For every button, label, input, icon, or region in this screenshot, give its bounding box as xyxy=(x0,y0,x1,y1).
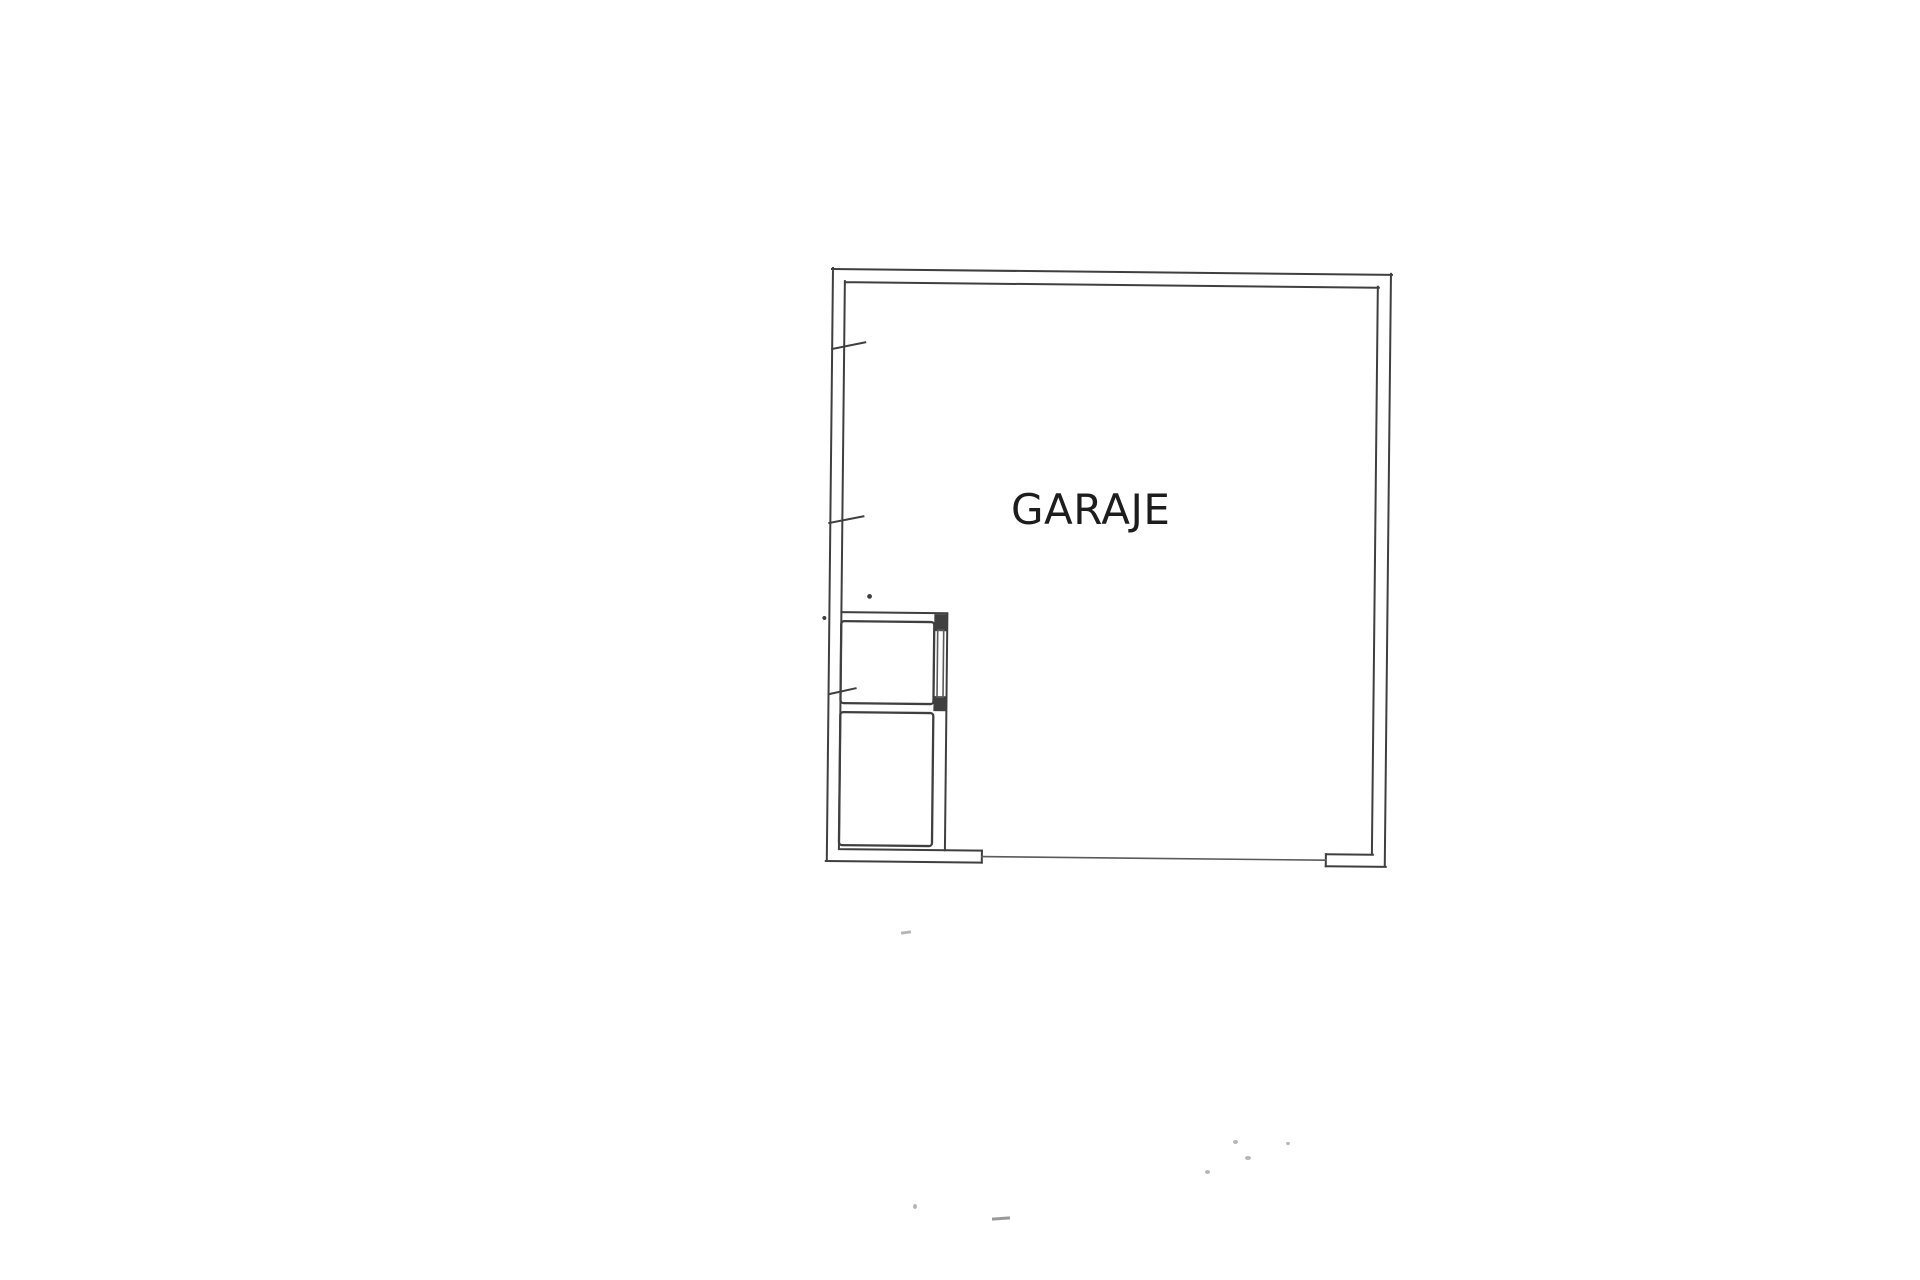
ink-dot-2 xyxy=(822,616,826,620)
storage-room-upper xyxy=(840,621,934,704)
scan-speck xyxy=(913,1204,917,1209)
storage-partition-outer xyxy=(839,612,947,850)
scanned-floor-plan-page: GARAJE xyxy=(0,0,1920,1280)
room-label-garaje: GARAJE xyxy=(1011,489,1170,531)
wall-break-tick-3 xyxy=(830,688,856,694)
garage-door-threshold-line xyxy=(982,857,1326,861)
storage-room-lower xyxy=(839,712,933,846)
wall-break-tick-1 xyxy=(832,342,865,349)
inner-wall-lines xyxy=(839,281,1379,855)
door-jamb-block-bottom xyxy=(933,696,946,711)
door-leaf xyxy=(937,630,944,697)
scan-speck xyxy=(1245,1156,1251,1160)
wall-break-tick-2 xyxy=(829,516,863,523)
scan-speck xyxy=(1205,1170,1210,1174)
scan-speck xyxy=(1233,1140,1238,1144)
outer-wall-lines xyxy=(826,268,1392,867)
garage-plan xyxy=(820,268,1392,867)
scan-speck xyxy=(1286,1142,1290,1145)
door-jamb-block-top xyxy=(934,614,947,631)
ink-dot-1 xyxy=(867,594,872,599)
floor-plan-drawing xyxy=(0,0,1920,1280)
